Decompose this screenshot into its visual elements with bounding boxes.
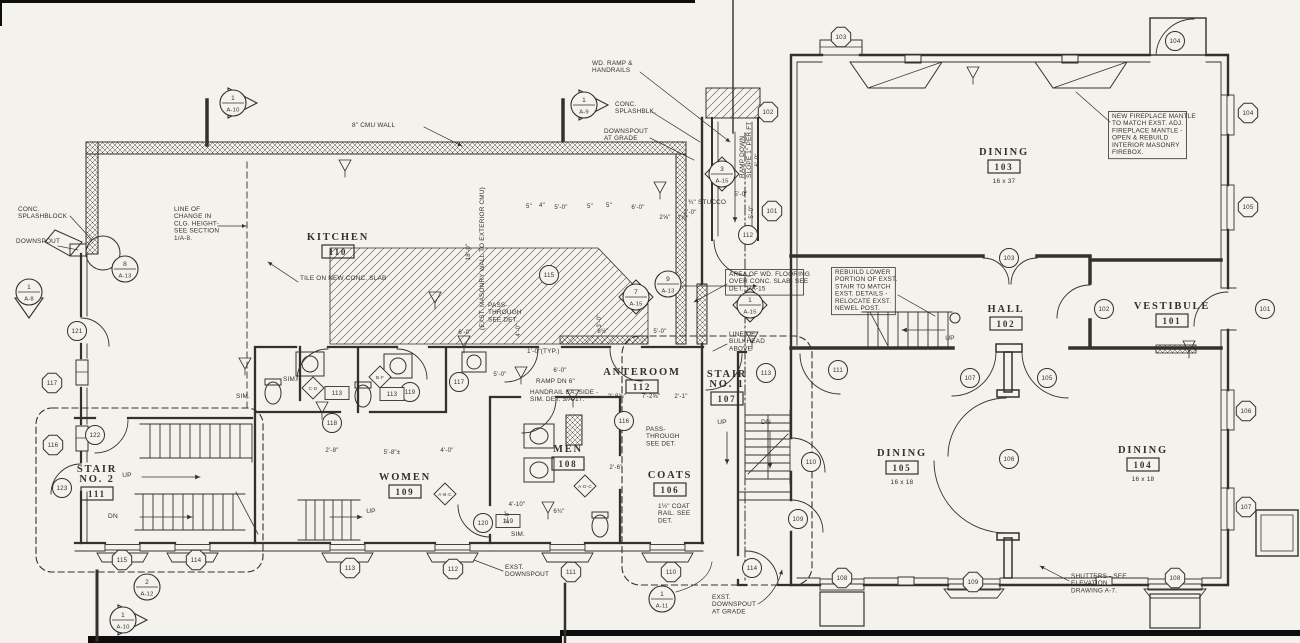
stair-direction-label: DN [108, 513, 118, 520]
svg-text:DN: DN [761, 419, 771, 426]
svg-text:8" CMU WALL: 8" CMU WALL [352, 122, 396, 129]
svg-text:5'-0": 5'-0" [748, 205, 755, 218]
dimension-label: 5'-0" [493, 371, 506, 378]
door-tag-117: 117 [450, 373, 469, 392]
svg-text:A-15: A-15 [715, 179, 728, 185]
dimension-label: 2'-6" [609, 464, 622, 471]
svg-text:CONC.: CONC. [18, 206, 40, 213]
room-label-hall: HALL102 [988, 304, 1025, 330]
annotation-tile-slab: TILE ON NEW CONC. SLAB [300, 275, 386, 282]
svg-text:¾" STUCCO: ¾" STUCCO [688, 199, 726, 206]
annotation-typ-dim: 1'-0"(TYP.) [527, 348, 560, 355]
svg-text:DOWNSPOUT: DOWNSPOUT [16, 238, 60, 245]
annotation-coat-rail: 1½" COATRAIL. SEEDET. [658, 502, 690, 524]
svg-text:102: 102 [1099, 306, 1110, 313]
letter-diamond-tag: C·D [302, 377, 324, 399]
window-tag-109: 109 [963, 572, 982, 591]
room-label-dining-105: DINING10516 x 18 [877, 448, 927, 486]
door-tag-120: 120 [474, 514, 493, 533]
window-tag-117: 117 [42, 373, 61, 392]
detail-tag-1-A-10: 1A-10 [220, 88, 257, 118]
svg-text:105: 105 [1042, 375, 1053, 382]
svg-text:SPLASHBLK.: SPLASHBLK. [615, 108, 656, 115]
window-tag-114: 114 [186, 550, 205, 569]
door-tag-102: 102 [1095, 300, 1114, 319]
svg-text:NEW FIREPLACE MANTLE: NEW FIREPLACE MANTLE [1112, 113, 1196, 120]
svg-text:6'-0": 6'-0" [553, 367, 566, 374]
window-tag-112: 112 [443, 559, 462, 578]
svg-text:7: 7 [634, 289, 638, 296]
svg-text:9: 9 [666, 276, 670, 283]
door-tag-112: 112 [739, 226, 758, 245]
svg-text:3'-0": 3'-0" [504, 510, 511, 523]
door-tag-104: 104 [1166, 32, 1185, 51]
svg-text:KITCHEN: KITCHEN [307, 232, 369, 243]
svg-text:7⅞": 7⅞" [677, 215, 688, 222]
svg-text:5": 5" [606, 202, 612, 209]
svg-text:8: 8 [123, 261, 127, 268]
svg-text:CONC.: CONC. [615, 101, 637, 108]
svg-text:AT GRADE: AT GRADE [712, 608, 746, 615]
dimension-label: 18'-0" [465, 244, 472, 261]
dimension-label: 6'-0" [553, 367, 566, 374]
annotation-downspout-grade: DOWNSPOUTAT GRADE [604, 128, 648, 142]
svg-text:UP: UP [122, 472, 132, 479]
svg-text:16 x 18: 16 x 18 [1132, 476, 1155, 483]
svg-text:105: 105 [893, 463, 912, 473]
svg-text:HANDRAIL EA. SIDE -: HANDRAIL EA. SIDE - [530, 389, 599, 396]
svg-text:BULKHEAD: BULKHEAD [729, 338, 765, 345]
svg-text:104: 104 [1243, 110, 1254, 117]
svg-text:SEE DET.: SEE DET. [646, 440, 676, 447]
svg-text:SPLASHBLOCK: SPLASHBLOCK [18, 213, 68, 220]
door-tag-115: 115 [540, 266, 559, 285]
annotation-exst-downspout: EXST.DOWNSPOUT [505, 564, 549, 578]
window-tag-104: 104 [1238, 103, 1257, 122]
svg-text:HALL: HALL [988, 304, 1025, 315]
svg-text:HANDRAILS: HANDRAILS [592, 67, 630, 74]
svg-text:123: 123 [57, 485, 68, 492]
annotation-sim-3: SIM. [511, 531, 525, 538]
annotation-wd-ramp: WD. RAMP &HANDRAILS [592, 60, 633, 74]
stair-direction-label: UP [945, 335, 955, 342]
window-tag-107: 107 [1236, 497, 1255, 516]
window-tag-116: 116 [43, 435, 62, 454]
svg-text:RAMP DOWN: RAMP DOWN [739, 136, 746, 178]
svg-text:UP: UP [366, 508, 376, 515]
svg-text:5'-8"±: 5'-8"± [384, 449, 401, 456]
svg-text:1: 1 [748, 297, 752, 304]
annotation-ramp-down: RAMP DOWNSLOPE 1" PER FT [739, 122, 753, 178]
svg-text:5": 5" [526, 203, 532, 210]
svg-text:1: 1 [27, 284, 31, 291]
svg-text:101: 101 [1163, 316, 1182, 326]
svg-text:DINING: DINING [979, 147, 1029, 158]
svg-text:FIREBOX.: FIREBOX. [1112, 149, 1143, 156]
svg-text:6'-0": 6'-0" [458, 329, 471, 336]
dimension-label: 4'-0" [440, 447, 453, 454]
annotation-fireplace: NEW FIREPLACE MANTLETO MATCH EXST. ADJ.F… [1109, 112, 1196, 159]
door-tag-114: 114 [743, 559, 762, 578]
door-tag-118: 118 [323, 414, 342, 433]
svg-text:MEN: MEN [553, 444, 583, 455]
annotation-clg-height: LINE OFCHANGE INCLG. HEIGHT-SEE SECTION1… [174, 206, 219, 242]
detail-tag-1-A-8: 1A-8 [15, 279, 43, 318]
svg-text:1/A-8.: 1/A-8. [174, 235, 192, 242]
svg-text:RELOCATE EXST.: RELOCATE EXST. [835, 298, 891, 305]
svg-text:103: 103 [995, 162, 1014, 172]
svg-text:112: 112 [743, 232, 754, 239]
room-label-women: WOMEN109 [379, 472, 431, 498]
dimension-label: 5'-0" [554, 204, 567, 211]
svg-text:DOWNSPOUT: DOWNSPOUT [604, 128, 648, 135]
annotation-pass-through-2: PASS-THROUGHSEE DET. [646, 426, 680, 447]
svg-text:ELEVATION: ELEVATION [1071, 580, 1108, 587]
svg-text:2⅝": 2⅝" [659, 214, 670, 221]
window-tag-108: 108 [1165, 568, 1184, 587]
svg-text:A·D·C: A·D·C [578, 484, 592, 489]
svg-text:5": 5" [587, 203, 593, 210]
svg-text:A-10: A-10 [226, 108, 239, 114]
svg-text:A-8: A-8 [24, 297, 34, 303]
room-label-dining-104: DINING10416 x 18 [1118, 445, 1168, 483]
svg-text:111: 111 [566, 569, 576, 576]
detail-tag-1-A-15: 1A-15 [733, 288, 767, 322]
window-tag-105: 105 [1238, 197, 1257, 216]
fixture-tag-113: 113 [325, 387, 349, 400]
svg-text:NO. 2: NO. 2 [79, 474, 114, 485]
dimension-label: 5" [526, 203, 532, 210]
dimension-label: 2'-1" [674, 393, 687, 400]
svg-text:103: 103 [836, 34, 847, 41]
svg-text:4'-10": 4'-10" [509, 501, 526, 508]
drawing-sheet: KITCHEN110DINING10316 x 37HALL102VESTIBU… [0, 0, 1300, 643]
svg-text:2'-6": 2'-6" [609, 464, 622, 471]
annotation-stucco: ¾" STUCCO [688, 199, 726, 206]
svg-text:102: 102 [997, 319, 1016, 329]
dimension-label: 7'-2⅝" [642, 393, 660, 400]
detail-tag-3-A-15: 3A-15 [705, 157, 739, 191]
svg-text:2'-8": 2'-8" [325, 447, 338, 454]
svg-text:104: 104 [1170, 38, 1181, 45]
svg-text:105: 105 [1243, 204, 1254, 211]
door-tag-105: 105 [1038, 369, 1057, 388]
svg-text:116: 116 [48, 442, 59, 449]
annotation-cmu-wall: 8" CMU WALL [352, 122, 396, 129]
dimension-label: 3'-0" [504, 510, 511, 523]
window-tag-113: 113 [340, 558, 359, 577]
svg-text:A-10: A-10 [116, 625, 129, 631]
svg-text:A-13: A-13 [661, 289, 674, 295]
svg-text:16 x 18: 16 x 18 [891, 479, 914, 486]
svg-text:110: 110 [329, 247, 347, 257]
annotation-sim-1: SIM. [283, 376, 297, 383]
svg-text:101: 101 [767, 208, 778, 215]
door-tag-123: 123 [53, 479, 72, 498]
svg-text:DOWNSPOUT: DOWNSPOUT [505, 571, 549, 578]
svg-text:6'-0": 6'-0" [754, 153, 761, 166]
dimension-label: 5'-8"± [384, 449, 401, 456]
door-tag-101: 101 [1256, 300, 1275, 319]
svg-text:106: 106 [1241, 408, 1252, 415]
window-tag-106: 106 [1236, 401, 1255, 420]
stair-direction-label: DN [761, 419, 771, 426]
svg-text:AREA OF WD. FLOORING: AREA OF WD. FLOORING [729, 271, 810, 278]
svg-text:116: 116 [619, 418, 630, 425]
window-tag-111: 111 [561, 562, 580, 581]
room-label-vestibule: VESTIBULE101 [1134, 301, 1210, 327]
svg-text:18'-0": 18'-0" [465, 244, 472, 261]
svg-text:3: 3 [720, 166, 724, 173]
svg-text:SLOPE 1" PER FT: SLOPE 1" PER FT [746, 122, 753, 178]
svg-text:109: 109 [968, 579, 979, 586]
letter-diamond-tag: A·B·C [434, 483, 456, 505]
svg-text:PORTION OF EXST.: PORTION OF EXST. [835, 276, 897, 283]
svg-text:101: 101 [1260, 306, 1271, 313]
svg-text:SIM.: SIM. [511, 531, 525, 538]
annotation-conc-splashblk: CONC.SPLASHBLK. [615, 101, 656, 115]
svg-text:114: 114 [747, 565, 758, 572]
svg-text:WOMEN: WOMEN [379, 472, 431, 483]
door-tag-107: 107 [961, 369, 980, 388]
dimension-label: 3'-0" [596, 314, 603, 327]
stair-direction-label: UP [366, 508, 376, 515]
svg-text:111: 111 [88, 489, 106, 499]
stair-direction-label: UP [717, 419, 727, 426]
svg-text:2'-1": 2'-1" [674, 393, 687, 400]
svg-text:NO. 1: NO. 1 [709, 379, 744, 390]
detail-tag-1-A-10: 1A-10 [110, 605, 147, 635]
svg-text:OVER CONC. SLAB- SEE: OVER CONC. SLAB- SEE [729, 278, 808, 285]
letter-diamond-tag: A·D·C [574, 475, 596, 497]
svg-text:5'-0": 5'-0" [734, 191, 747, 198]
svg-text:113: 113 [345, 565, 356, 572]
svg-text:ABOVE: ABOVE [729, 345, 752, 352]
svg-text:114: 114 [191, 557, 202, 564]
detail-tag-9-A-13: 9A-13 [655, 271, 681, 297]
annotation-ramp-dn: RAMP DN 6" [536, 378, 575, 385]
svg-text:AT GRADE: AT GRADE [604, 135, 638, 142]
svg-text:EXST.: EXST. [505, 564, 524, 571]
window-tag-103: 103 [831, 27, 850, 46]
dimension-label: 5'-0" [653, 328, 666, 335]
dimension-label: 6'-0" [754, 153, 761, 166]
annotation-downspout: DOWNSPOUT [16, 238, 60, 245]
svg-text:112: 112 [633, 382, 651, 392]
svg-text:113: 113 [332, 390, 343, 397]
svg-text:A-15: A-15 [629, 302, 642, 308]
svg-text:A-11: A-11 [656, 604, 669, 610]
svg-text:A-13: A-13 [118, 274, 131, 280]
svg-text:A-15: A-15 [743, 310, 756, 316]
dimension-label: 5" [606, 202, 612, 209]
svg-text:CHANGE IN: CHANGE IN [174, 213, 211, 220]
svg-text:107: 107 [718, 394, 737, 404]
annotation-masonry-wall: (EXST. MASONRY WALL TO EXTERIOR CMU) [479, 187, 486, 330]
svg-text:THROUGH: THROUGH [488, 309, 522, 316]
svg-text:108: 108 [837, 575, 848, 582]
svg-text:EXST. DETAILS -: EXST. DETAILS - [835, 291, 888, 298]
svg-text:NEWEL POST.: NEWEL POST. [835, 305, 880, 312]
svg-text:120: 120 [478, 520, 489, 527]
svg-text:1: 1 [121, 612, 125, 619]
svg-text:RAMP DN 6": RAMP DN 6" [536, 378, 575, 385]
svg-text:UP: UP [945, 335, 955, 342]
svg-text:DET. 1/A-15: DET. 1/A-15 [729, 285, 766, 292]
svg-text:6¾": 6¾" [553, 508, 564, 515]
window-tag-115: 115 [112, 550, 131, 569]
svg-text:115: 115 [117, 557, 128, 564]
svg-text:C·D: C·D [309, 386, 318, 391]
svg-text:DINING: DINING [877, 448, 927, 459]
svg-text:6'-0": 6'-0" [631, 204, 644, 211]
svg-text:COATS: COATS [648, 470, 692, 481]
dimension-label: 2⅝" [659, 214, 670, 221]
svg-text:5'-0": 5'-0" [493, 371, 506, 378]
dimension-label: 4'-0" [515, 323, 522, 336]
svg-text:4'-0": 4'-0" [515, 323, 522, 336]
svg-text:DN: DN [108, 513, 118, 520]
room-label-dining-103: DINING10316 x 37 [979, 147, 1029, 185]
dimension-label: 4" [539, 202, 545, 209]
svg-text:117: 117 [454, 379, 465, 386]
svg-text:109: 109 [396, 487, 415, 497]
window-tag-102: 102 [758, 102, 777, 121]
svg-text:DINING: DINING [1118, 445, 1168, 456]
floor-plan-labels: KITCHEN110DINING10316 x 37HALL102VESTIBU… [0, 0, 1300, 643]
svg-text:117: 117 [47, 380, 58, 387]
svg-text:ANTEROOM: ANTEROOM [603, 367, 680, 378]
fixture-tag-113: 113 [380, 388, 404, 401]
svg-text:RAIL. SEE: RAIL. SEE [658, 510, 690, 517]
door-tag-111: 111 [829, 361, 848, 380]
room-label-coats: COATS106 [648, 470, 692, 496]
svg-text:REBUILD LOWER: REBUILD LOWER [835, 269, 891, 276]
detail-tag-8-A-13: 8A-13 [112, 256, 138, 282]
svg-text:8½": 8½" [597, 328, 608, 335]
detail-tag-2-A-12: 2A-12 [134, 574, 160, 600]
svg-text:1: 1 [231, 95, 235, 102]
svg-text:2'-8⅝": 2'-8⅝" [608, 393, 626, 400]
svg-text:112: 112 [448, 566, 459, 573]
svg-text:5'-0": 5'-0" [554, 204, 567, 211]
svg-text:TO MATCH EXST. ADJ.: TO MATCH EXST. ADJ. [1112, 120, 1183, 127]
room-label-kitchen: KITCHEN110 [307, 232, 369, 258]
svg-text:PASS-: PASS- [646, 426, 666, 433]
svg-text:LINE OF: LINE OF [174, 206, 200, 213]
dimension-label: 7⅞" [677, 215, 688, 222]
svg-text:DET.: DET. [658, 517, 673, 524]
door-tag-121: 121 [68, 322, 87, 341]
svg-text:1'-0"(TYP.): 1'-0"(TYP.) [527, 348, 560, 355]
svg-text:VESTIBULE: VESTIBULE [1134, 301, 1210, 312]
door-tag-103: 103 [1000, 249, 1019, 268]
svg-text:119: 119 [405, 389, 416, 396]
annotation-conc-splashblock: CONC.SPLASHBLOCK [18, 206, 68, 220]
door-tag-116: 116 [615, 412, 634, 431]
svg-text:106: 106 [661, 485, 680, 495]
dimension-label: 5'-0" [734, 191, 747, 198]
letter-diamond-tag: B·F [369, 366, 391, 388]
annotation-bulkhead: LINE OFBULKHEADABOVE [729, 331, 765, 352]
room-label-anteroom: ANTEROOM112 [603, 367, 680, 393]
svg-text:108: 108 [1170, 575, 1181, 582]
svg-text:5'-0": 5'-0" [653, 328, 666, 335]
annotation-exst-downspout-grade: EXST.DOWNSPOUTAT GRADE [712, 594, 756, 615]
svg-text:OPEN & REBUILD: OPEN & REBUILD [1112, 135, 1169, 142]
svg-text:109: 109 [793, 516, 804, 523]
window-tag-110: 110 [661, 562, 680, 581]
svg-text:1: 1 [582, 97, 586, 104]
annotation-shutters: SHUTTERS - SEEELEVATIONDRAWING A-7. [1071, 573, 1127, 594]
svg-text:B·F: B·F [376, 375, 384, 380]
svg-text:A-12: A-12 [140, 592, 153, 598]
svg-text:2: 2 [145, 579, 149, 586]
svg-text:104: 104 [1134, 460, 1153, 470]
svg-text:INTERIOR MASONRY: INTERIOR MASONRY [1112, 142, 1180, 149]
door-tag-113: 113 [757, 364, 776, 383]
stair-direction-label: UP [122, 472, 132, 479]
svg-text:SIM.: SIM. [236, 393, 250, 400]
svg-text:16 x 37: 16 x 37 [993, 178, 1016, 185]
svg-text:102: 102 [763, 109, 774, 116]
svg-text:4'-0": 4'-0" [440, 447, 453, 454]
svg-text:118: 118 [327, 420, 338, 427]
svg-text:113: 113 [761, 370, 772, 377]
svg-text:DRAWING A-7.: DRAWING A-7. [1071, 587, 1117, 594]
svg-text:115: 115 [544, 272, 555, 279]
window-tag-101: 101 [762, 201, 781, 220]
svg-text:4": 4" [539, 202, 545, 209]
svg-text:FIREPLACE MANTLE -: FIREPLACE MANTLE - [1112, 127, 1183, 134]
svg-text:LINE OF: LINE OF [729, 331, 755, 338]
svg-text:CLG. HEIGHT-: CLG. HEIGHT- [174, 220, 219, 227]
dimension-label: 8½" [597, 328, 608, 335]
svg-text:THROUGH: THROUGH [646, 433, 680, 440]
dimension-label: 2'-8⅝" [608, 393, 626, 400]
svg-text:SIM. DET. 3/A-17.: SIM. DET. 3/A-17. [530, 396, 585, 403]
detail-tag-1-A-9: 1A-9 [571, 90, 608, 120]
svg-text:108: 108 [559, 459, 578, 469]
room-label-stair-1: STAIRNO. 1107 [707, 369, 747, 405]
door-tag-110: 110 [802, 453, 821, 472]
annotation-sim-2: SIM. [236, 393, 250, 400]
dimension-label: 6'-0" [631, 204, 644, 211]
dimension-label: 5'-0" [748, 205, 755, 218]
dimension-label: 6'-0" [458, 329, 471, 336]
svg-text:STAIR TO MATCH: STAIR TO MATCH [835, 283, 891, 290]
detail-tag-7-A-15: 7A-15 [619, 280, 653, 314]
svg-text:107: 107 [965, 375, 976, 382]
dimension-label: 6¾" [553, 508, 564, 515]
svg-text:110: 110 [806, 459, 817, 466]
svg-text:103: 103 [1004, 255, 1015, 262]
svg-text:PASS-: PASS- [488, 302, 508, 309]
annotation-rebuild-stair: REBUILD LOWERPORTION OF EXST.STAIR TO MA… [832, 268, 898, 315]
svg-text:DOWNSPOUT: DOWNSPOUT [712, 601, 756, 608]
svg-text:107: 107 [1241, 504, 1252, 511]
svg-text:111: 111 [833, 367, 843, 374]
svg-text:UP: UP [717, 419, 727, 426]
dimension-label: 5" [587, 203, 593, 210]
room-label-men: MEN108 [552, 444, 584, 470]
svg-text:SEE SECTION: SEE SECTION [174, 228, 219, 235]
svg-text:106: 106 [1004, 456, 1015, 463]
svg-text:7'-2⅝": 7'-2⅝" [642, 393, 660, 400]
svg-text:EXST.: EXST. [712, 594, 731, 601]
window-tag-108: 108 [832, 568, 851, 587]
svg-text:110: 110 [666, 569, 677, 576]
